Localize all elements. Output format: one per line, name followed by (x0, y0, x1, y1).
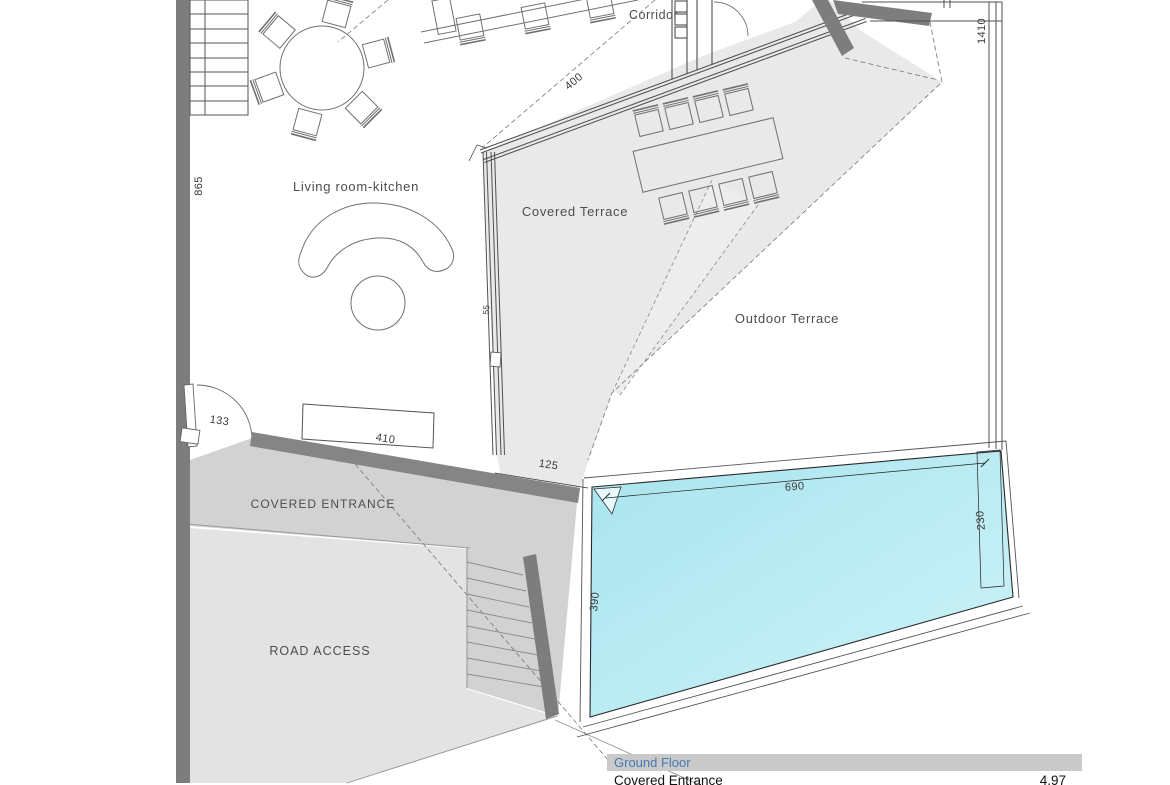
indoor-staircase (190, 0, 248, 115)
label-covered-terrace: Covered Terrace (522, 204, 628, 219)
ottoman (351, 276, 405, 330)
kitchen-table-set (421, 0, 638, 45)
label-covered-entrance: COVERED ENTRANCE (251, 497, 396, 511)
area-table-header: Ground Floor (607, 754, 1082, 771)
dim-terrace-wall: 55 (481, 304, 492, 315)
dim-right-boundary: 1410 (976, 18, 988, 44)
label-outdoor-terrace: Outdoor Terrace (735, 311, 839, 326)
dim-pool-length: 690 (784, 480, 805, 494)
round-table-set (250, 0, 394, 140)
dim-left-wall: 865 (193, 176, 205, 196)
floor-plan-drawing: Corridor 55 (0, 0, 1170, 785)
dim-pool-side: 390 (588, 591, 602, 612)
floor-plan-page: Corridor 55 (0, 0, 1170, 785)
dim-pool-width: 230 (974, 510, 988, 531)
area-table: Ground Floor Covered Entrance 4.97 (607, 754, 1082, 785)
label-living-room-kitchen: Living room-kitchen (293, 179, 419, 194)
label-road-access: ROAD ACCESS (269, 644, 370, 658)
dim-glass-diagonal: 400 (563, 71, 586, 93)
area-row-value: 4.97 (1040, 773, 1066, 785)
dim-entrance-door: 133 (209, 414, 230, 429)
sofa (299, 203, 454, 330)
area-table-header-label: Ground Floor (614, 755, 691, 770)
entrance-sidelight (302, 404, 434, 448)
area-row-label: Covered Entrance (614, 773, 723, 785)
area-table-row: Covered Entrance 4.97 (607, 771, 1082, 785)
label-corridor: Corridor (629, 8, 678, 22)
